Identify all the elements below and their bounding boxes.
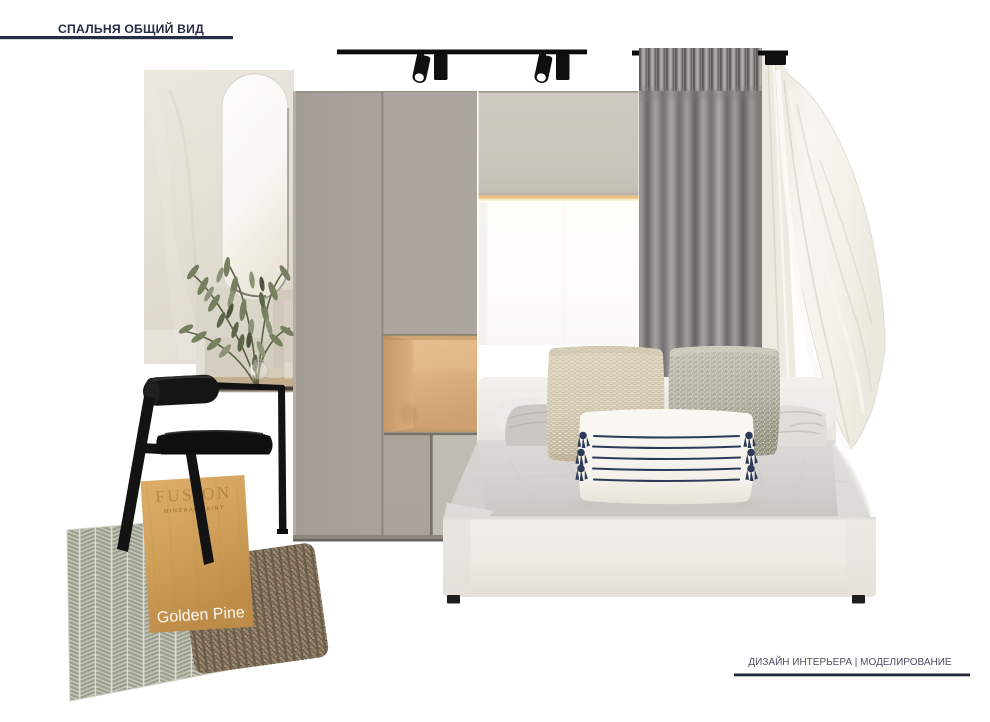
svg-text:СПАЛЬНЯ ОБЩИЙ ВИД: СПАЛЬНЯ ОБЩИЙ ВИД xyxy=(58,21,204,36)
svg-text:ДИЗАЙН ИНТЕРЬЕРА | МОДЕЛИРОВАН: ДИЗАЙН ИНТЕРЬЕРА | МОДЕЛИРОВАНИЕ xyxy=(748,655,951,668)
